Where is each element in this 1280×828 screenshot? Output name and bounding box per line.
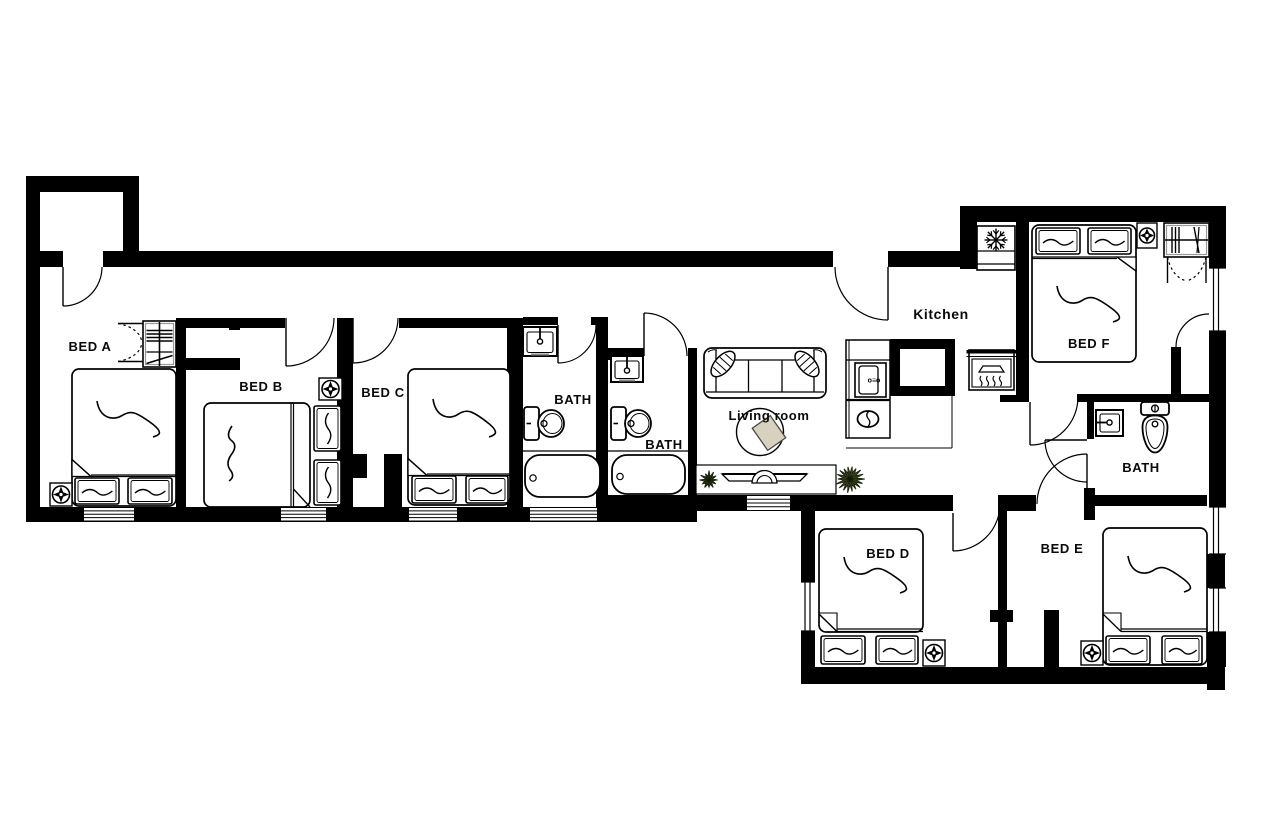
svg-text:BED F: BED F [1068, 336, 1110, 351]
svg-text:BATH: BATH [554, 392, 592, 407]
svg-text:BATH: BATH [1122, 460, 1160, 475]
svg-text:BED A: BED A [69, 339, 112, 354]
svg-text:BATH: BATH [645, 437, 683, 452]
svg-text:o≡o: o≡o [868, 378, 881, 385]
svg-text:Living room: Living room [729, 408, 810, 423]
svg-text:BED E: BED E [1041, 541, 1084, 556]
svg-text:BED C: BED C [361, 385, 404, 400]
svg-text:Kitchen: Kitchen [913, 306, 969, 322]
svg-text:BED D: BED D [866, 546, 909, 561]
svg-text:BED B: BED B [239, 379, 282, 394]
